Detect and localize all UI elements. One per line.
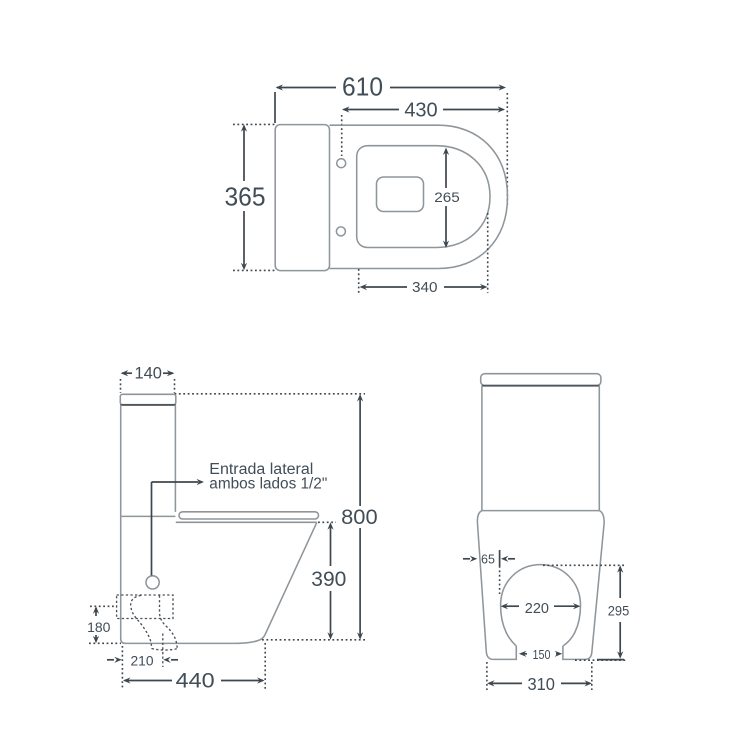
svg-text:65: 65: [481, 553, 495, 567]
svg-text:265: 265: [434, 189, 460, 205]
svg-text:340: 340: [412, 280, 438, 296]
svg-text:150: 150: [533, 647, 551, 662]
svg-text:440: 440: [176, 670, 215, 693]
svg-text:365: 365: [225, 182, 266, 212]
svg-text:800: 800: [341, 506, 378, 529]
svg-text:310: 310: [527, 674, 555, 694]
svg-text:295: 295: [608, 603, 630, 619]
svg-text:210: 210: [131, 653, 154, 669]
svg-text:180: 180: [87, 619, 111, 635]
svg-text:220: 220: [525, 601, 549, 617]
svg-text:ambos lados 1/2": ambos lados 1/2": [209, 476, 327, 493]
svg-text:610: 610: [342, 72, 383, 102]
svg-text:140: 140: [134, 364, 162, 383]
svg-text:390: 390: [311, 568, 346, 591]
svg-text:430: 430: [404, 100, 437, 122]
